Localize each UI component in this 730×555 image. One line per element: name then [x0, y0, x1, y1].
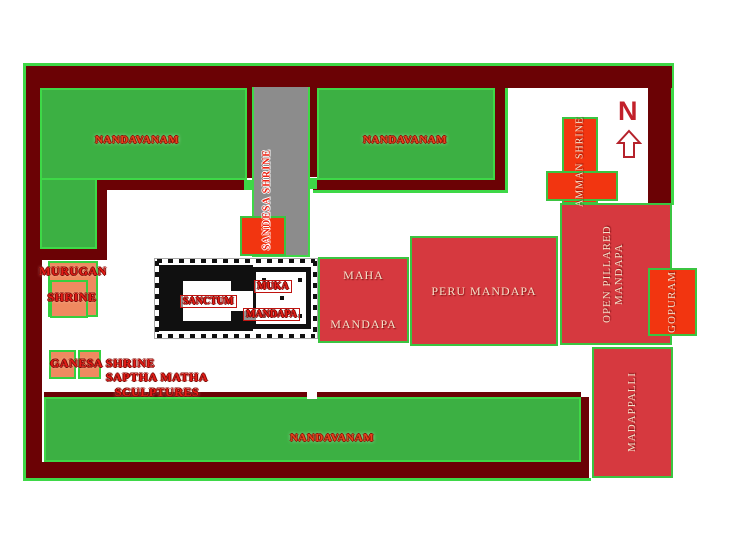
inner-wall-garden2-horizontal — [313, 179, 505, 190]
compass-north-label: N — [618, 98, 638, 125]
garden-bottom-label: NANDAVANAM — [252, 430, 412, 446]
wall-gap-right — [310, 178, 317, 189]
open-pillared-mandapa-label: OPEN PILLARED MANDAPA — [599, 205, 627, 343]
inner-wall-garden1-vertical — [97, 180, 107, 250]
plan-pillar-dot — [280, 296, 284, 300]
compound-wall-right — [648, 66, 671, 203]
inner-wall-garden1-horizontal — [97, 180, 247, 190]
murugan-shrine-label-line1: MURUGAN — [33, 264, 113, 278]
peru-mandapa-label: PERU MANDAPA — [412, 283, 556, 299]
maha-mandapa-label: MAHA MANDAPA — [320, 268, 407, 332]
plan-crenellation-right — [313, 261, 317, 336]
plan-crenellation-top — [157, 259, 315, 263]
temple-site-plan: SANCTUM MUKA MANDAPA NANDAVANAM NANDAVAN… — [0, 0, 730, 555]
inner-wall-garden2-vertical — [495, 88, 505, 190]
compound-wall-top — [26, 66, 672, 88]
amman-shrine-label: AMMAN SHRINE — [566, 114, 594, 210]
garden-bottom-end-wall — [581, 397, 589, 462]
garden-bottom-gap — [307, 390, 317, 399]
sanctum-label: SANCTUM — [180, 295, 237, 308]
saptha-matha-label: SAPTHA MATHA SCULPTURES — [73, 377, 241, 392]
wall-gap-left — [244, 180, 252, 190]
garden-top-right-label: NANDAVANAM — [325, 132, 485, 148]
muka-mandapa-label-line2: MANDAPA — [243, 308, 300, 321]
madappalli-label: MADAPPALLI — [618, 350, 646, 475]
plan-pillar-dot — [298, 278, 302, 282]
muka-mandapa-label-line1: MUKA — [254, 280, 292, 293]
compound-outline-bottom — [23, 478, 591, 481]
inner-wall-garden2-outline-h — [313, 190, 508, 193]
compass-arrow-icon — [616, 129, 642, 159]
gopuram-label: GOPURAM — [658, 270, 686, 334]
garden-top-left-label: NANDAVANAM — [57, 132, 217, 148]
murugan-shrine-label-line2: SHRINE — [33, 290, 111, 304]
sandesa-shrine-label: SANDESA SHRINE — [258, 148, 276, 252]
inner-wall-garden1-bottom — [40, 249, 107, 260]
maha-mandapa-label-line2: MANDAPA — [330, 317, 397, 332]
plan-crenellation-bottom — [157, 334, 315, 338]
maha-mandapa-label-line1: MAHA — [343, 268, 384, 283]
inner-wall-garden2-outline-v — [505, 88, 508, 192]
compound-wall-bottom — [26, 462, 589, 478]
path-separator-right — [310, 88, 317, 177]
